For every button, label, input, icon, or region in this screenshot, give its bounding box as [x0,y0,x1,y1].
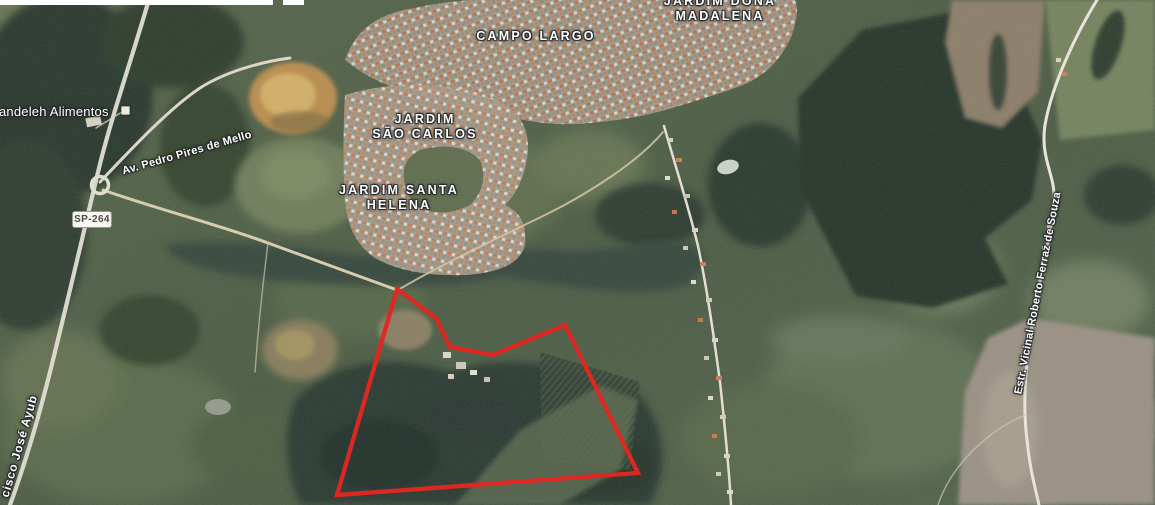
top-edge-strip-small [283,0,304,5]
satellite-map[interactable]: CAMPO LARGO JARDIM DONA MADALENA JARDIM … [0,0,1155,505]
road-badge-sp264: SP-264 [72,211,112,228]
poi-marker-icon [121,106,130,115]
satellite-imagery [0,0,1155,505]
top-edge-strip [0,0,273,5]
noise-texture [0,0,1155,505]
